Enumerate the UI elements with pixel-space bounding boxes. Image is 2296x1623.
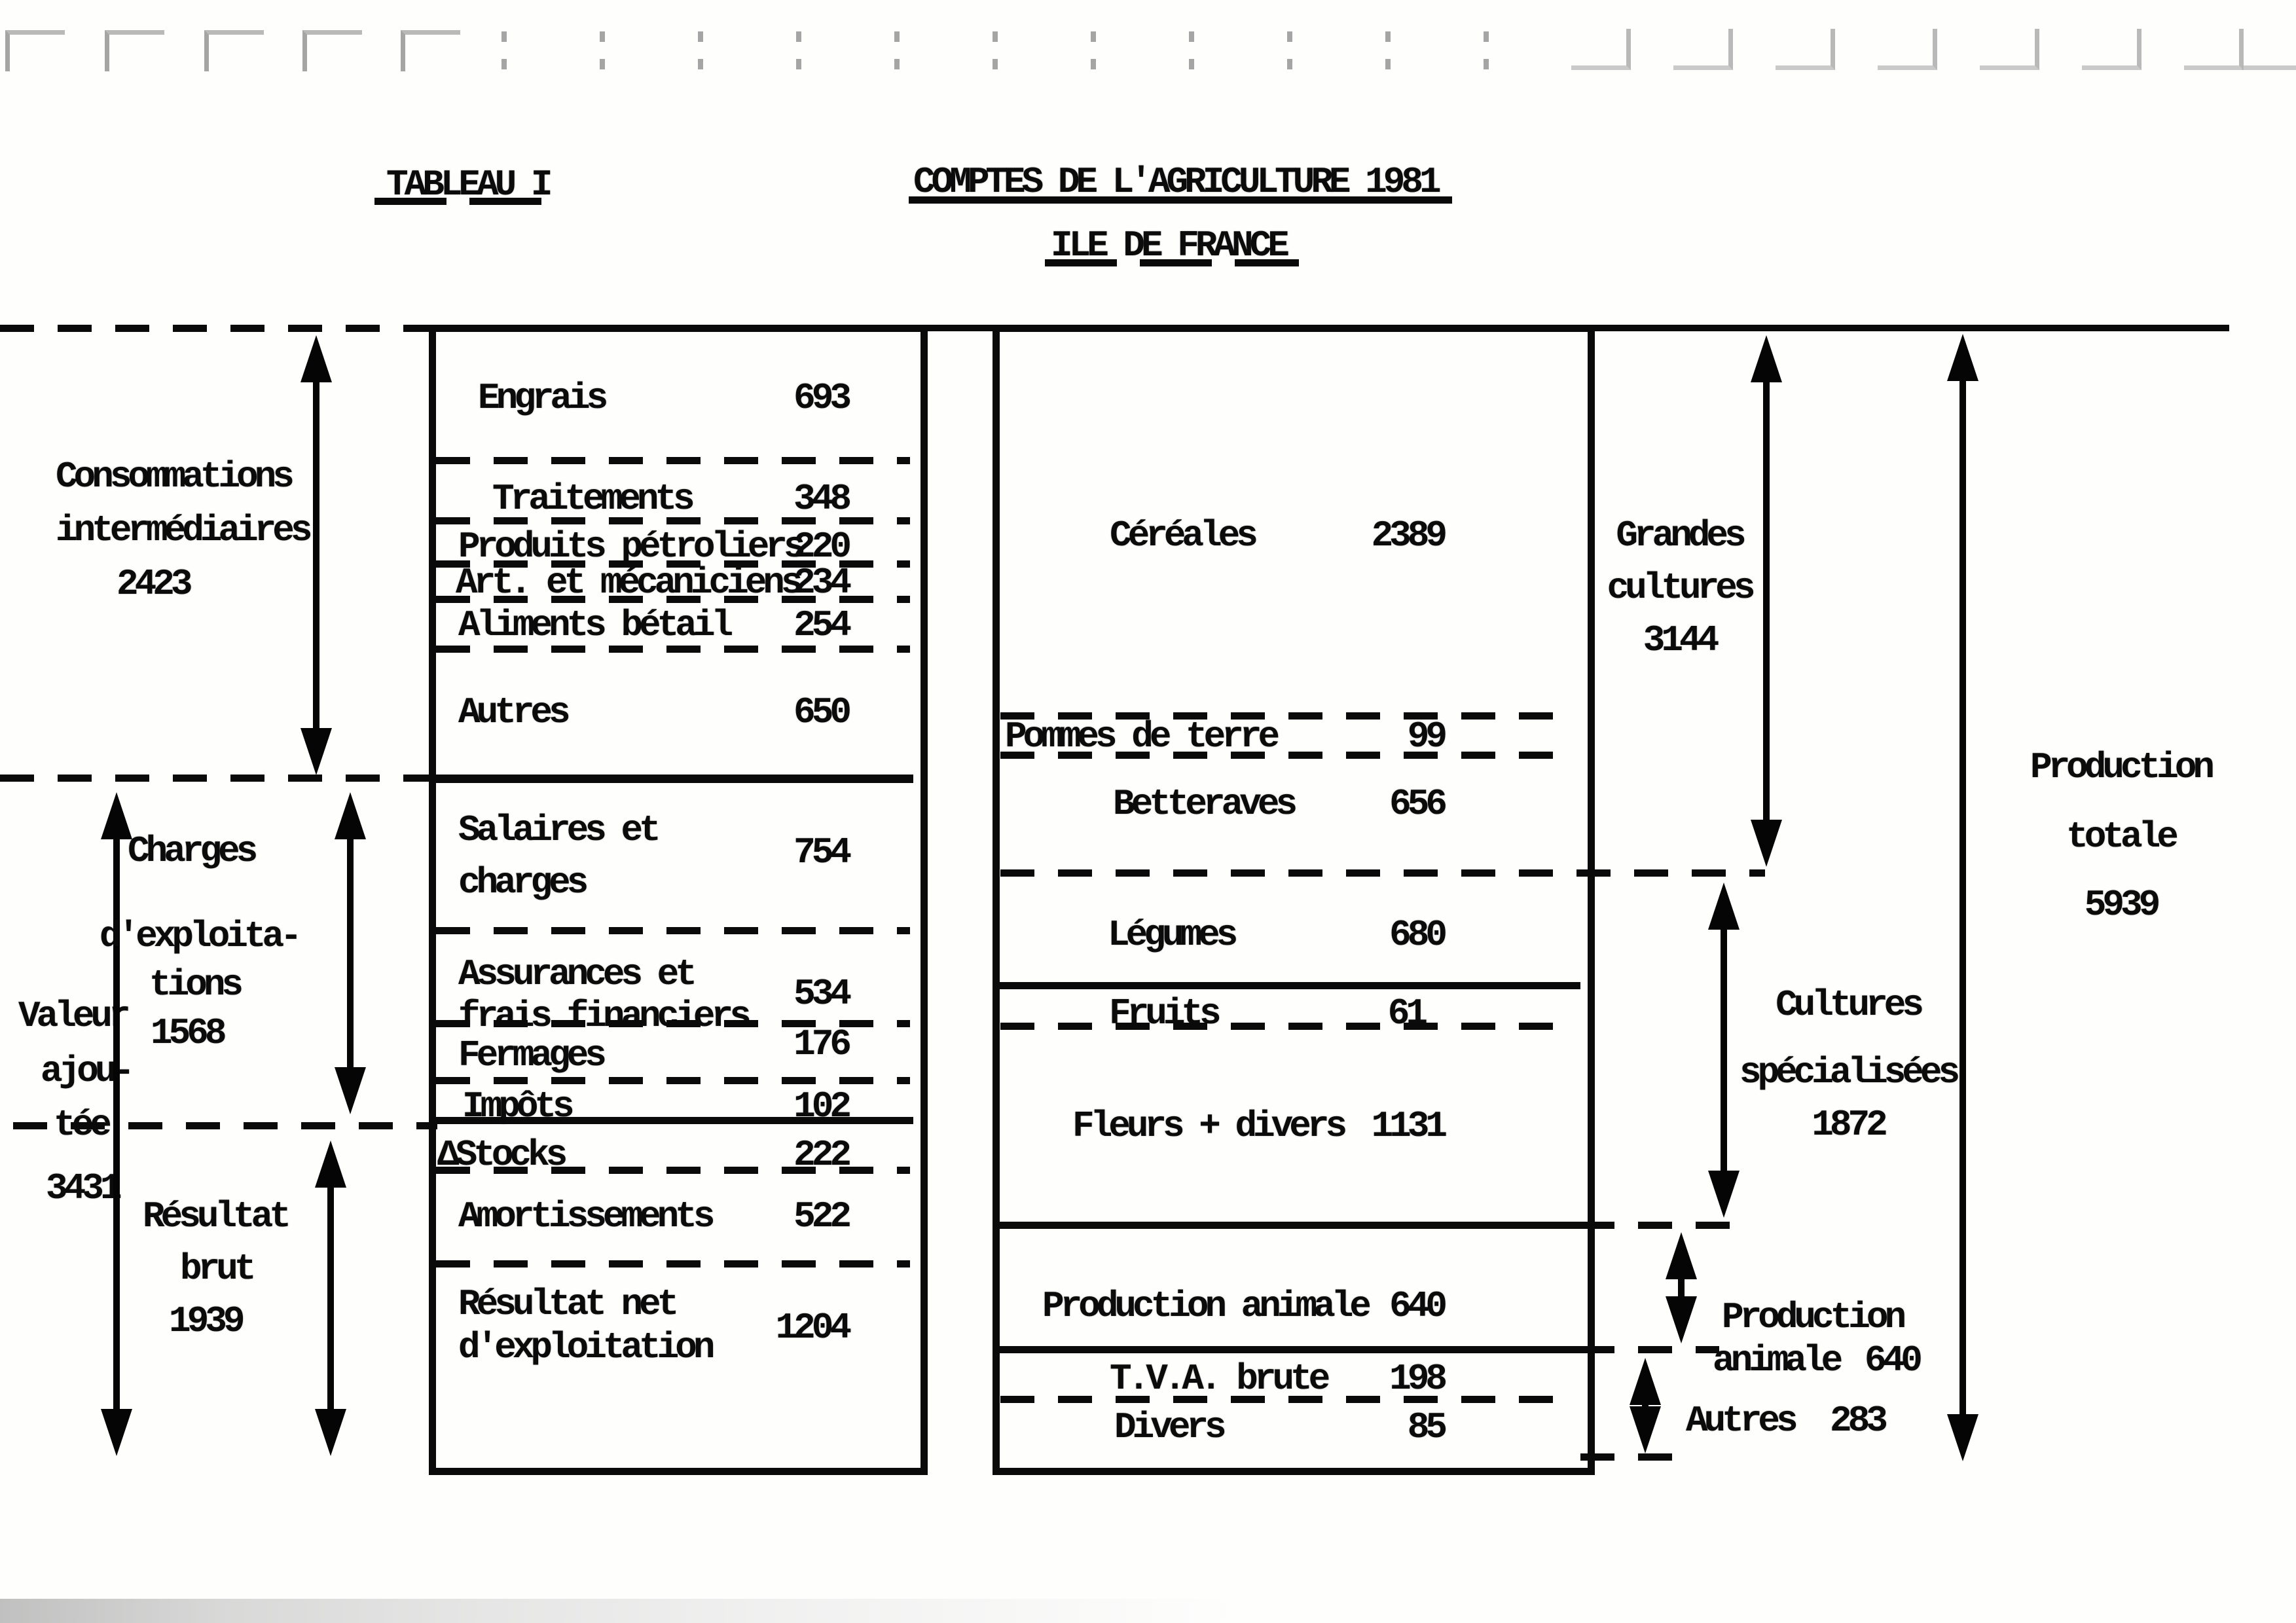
cultures-specialisees-label-line1: Cultures [1735,979,1961,1031]
scanned-diagram-page: TABLEAU I COMPTES DE L'AGRICULTURE 1981 … [0,0,2296,1623]
cost-row-label: Impôts [462,1080,571,1133]
registration-mark [501,31,507,69]
charges-label-line3: tions [149,958,240,1011]
charges-resultat-boundary-dashed [13,1122,437,1129]
production-animale-value: 640 [1865,1334,1919,1387]
cost-row-value: 534 [717,968,848,1020]
registration-mark [5,30,65,71]
registration-mark [1878,29,1937,70]
cultures-specialisees-value: 1872 [1735,1099,1961,1151]
cost-row-label: Engrais [478,372,604,424]
separator-dashed [436,1167,910,1174]
production-row-value: 61 [1283,987,1424,1040]
registration-mark [796,31,801,69]
production-totale-label-line1: Production [2002,741,2239,793]
grandes-cultures-boundary-dashed [1000,869,1765,877]
production-row-value: 680 [1303,909,1444,961]
page-title-underline [909,196,1452,204]
registration-mark [1484,31,1489,69]
production-row-label: Légumes [1108,909,1234,961]
separator-dashed [1000,1023,1574,1030]
separator-dashed [1000,752,1574,759]
cost-row-label: Fermages [458,1029,603,1082]
grandes-cultures-value: 3144 [1581,614,1777,666]
section-divider-solid [429,775,913,783]
production-animale-label-line2: animale [1713,1334,1839,1387]
valeur-value: 3431 [46,1162,118,1214]
cost-row-label2: charges [458,856,585,909]
registration-mark [993,31,998,69]
separator-dashed [436,1260,910,1267]
charges-label-line1: Charges [128,825,254,877]
production-row-value: 85 [1303,1401,1444,1453]
registration-mark [401,30,460,71]
cost-row-value: 1204 [717,1302,848,1354]
production-row-label: Betteraves [1113,778,1294,830]
cost-row-label: Autres [458,686,567,739]
registration-mark [204,30,264,71]
cultures-specialisees-label-line2: spécialisées [1735,1046,1961,1099]
autres-label: Autres [1686,1395,1795,1447]
registration-mark [1189,31,1194,69]
section-divider-solid [429,1117,913,1124]
registration-mark [1287,31,1292,69]
section-divider-solid [993,1222,1580,1229]
cost-row-value: 102 [717,1080,848,1133]
cost-row-value: 650 [717,686,848,739]
registration-mark [2082,29,2141,70]
production-row-value: 656 [1303,778,1444,830]
cost-row-value: 693 [717,372,848,424]
separator-dashed [436,457,910,464]
registration-mark [894,31,900,69]
production-row-value: 640 [1303,1280,1444,1332]
grandes-cultures-label-line1: Grandes [1581,509,1777,562]
registration-mark [600,31,605,69]
cost-row-value: 176 [717,1018,848,1070]
registration-mark [302,30,362,71]
resultat-label-line2: brut [180,1243,252,1295]
production-row-label: Céréales [1110,509,1254,562]
registration-mark [1776,29,1835,70]
resultat-value: 1939 [169,1295,241,1347]
registration-mark [1980,29,2039,70]
autres-value: 283 [1830,1395,1884,1447]
valeur-ajoutee-boundary-dashed [0,775,437,782]
separator-dashed [436,646,910,653]
valeur-label-line1: Valeur [18,990,127,1042]
cost-row-label: Aliments bétail [458,599,729,651]
consommations-label-line1: Consommations [56,450,291,503]
page-subtitle-underline [1045,259,1299,266]
charges-value: 1568 [151,1007,223,1059]
production-row-value: 1131 [1303,1100,1444,1152]
registration-mark [1091,31,1096,69]
table-label-underline [374,198,550,205]
top-rule-dashed [0,325,437,332]
cost-row-label: Salaires et [458,804,657,856]
registration-mark [2184,29,2244,70]
autres-boundary-dashed-ext [1580,1453,1672,1461]
production-row-value: 2389 [1303,509,1444,562]
production-totale-label-line2: totale [2002,811,2239,863]
cost-row-label2: d'exploitation [458,1321,711,1374]
specialisees-boundary-dashed-ext [1580,1222,1745,1229]
registration-mark [2242,29,2296,70]
separator-dashed [436,927,910,934]
registration-mark [105,30,164,71]
consommations-value: 2423 [117,558,189,610]
cost-row-value: 522 [717,1190,848,1243]
cost-row-value: 754 [717,826,848,879]
production-row-label: Fruits [1109,987,1218,1040]
animale-boundary-dashed-ext [1580,1346,1719,1353]
separator-dashed [1000,1396,1574,1403]
grandes-cultures-label-line2: cultures [1581,562,1777,614]
production-totale-value: 5939 [2002,879,2239,931]
registration-mark [698,31,703,69]
registration-mark [1673,29,1733,70]
registration-mark [1571,29,1631,70]
cost-row-value: 254 [717,599,848,651]
production-row-label: Divers [1114,1401,1223,1453]
resultat-label-line1: Résultat [143,1190,287,1243]
scan-artifact [0,1599,1244,1623]
registration-mark [1385,31,1391,69]
consommations-label-line2: intermédiaires [56,504,308,556]
charges-label-line2: d'exploita- [100,910,299,962]
cost-row-label: Amortissements [458,1190,711,1243]
